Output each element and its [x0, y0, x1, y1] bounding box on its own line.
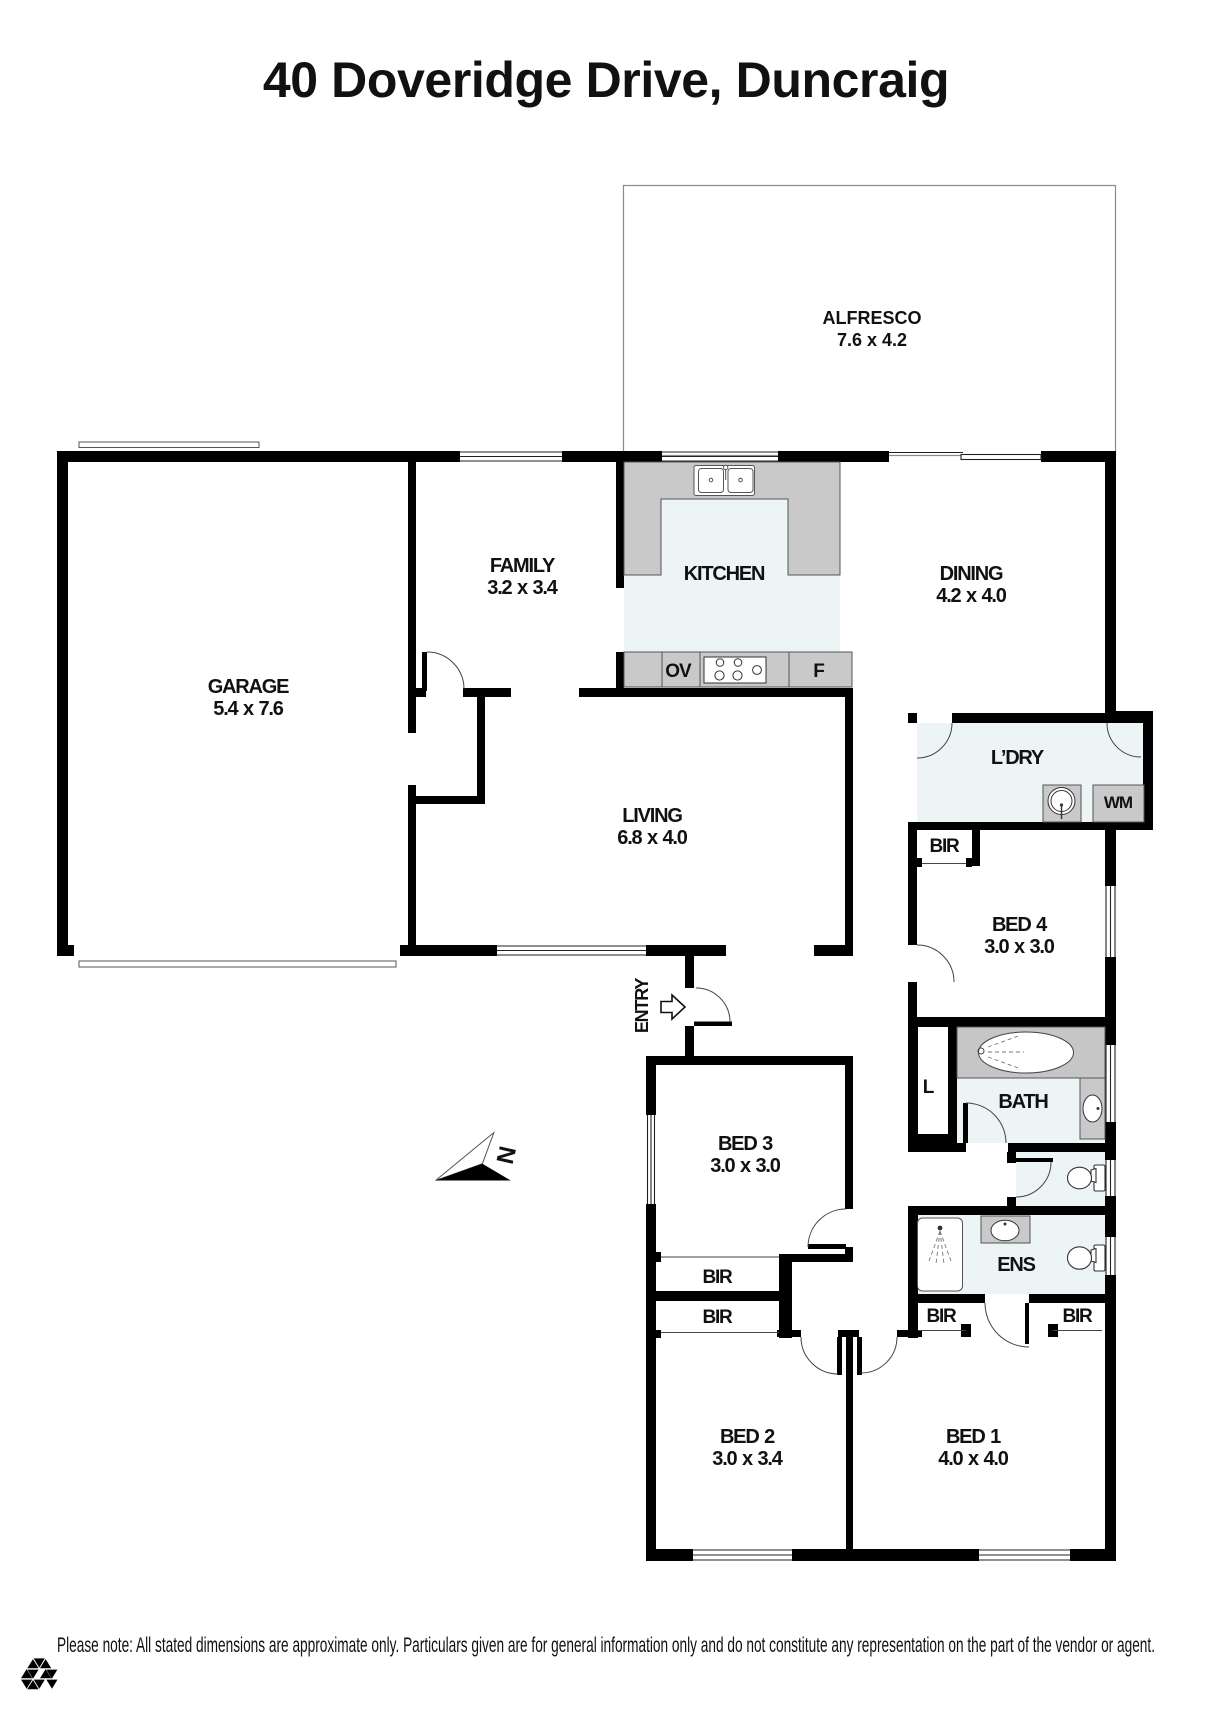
svg-text:3.2 x 3.4: 3.2 x 3.4 [487, 577, 559, 599]
svg-text:4.0 x 4.0: 4.0 x 4.0 [938, 1448, 1009, 1470]
svg-text:4.2 x 4.0: 4.2 x 4.0 [936, 585, 1007, 607]
svg-text:BED 3: BED 3 [718, 1133, 773, 1155]
svg-text:L: L [923, 1077, 935, 1098]
svg-text:DINING: DINING [940, 563, 1003, 585]
svg-text:FAMILY: FAMILY [490, 555, 556, 577]
svg-text:ALFRESCO: ALFRESCO [823, 308, 922, 328]
svg-text:BED 4: BED 4 [992, 914, 1048, 936]
svg-text:GARAGE: GARAGE [208, 676, 289, 698]
svg-text:L’DRY: L’DRY [991, 747, 1045, 769]
svg-text:40 Doveridge Drive, Duncraig: 40 Doveridge Drive, Duncraig [263, 52, 949, 108]
svg-text:BED 1: BED 1 [946, 1426, 1001, 1448]
svg-text:BIR: BIR [926, 1306, 957, 1327]
svg-text:7.6 x 4.2: 7.6 x 4.2 [837, 330, 907, 350]
svg-text:3.0 x 3.0: 3.0 x 3.0 [984, 936, 1055, 958]
svg-text:OV: OV [665, 661, 692, 682]
svg-text:BIR: BIR [702, 1267, 733, 1288]
svg-text:5.4 x 7.6: 5.4 x 7.6 [213, 698, 284, 720]
svg-text:BATH: BATH [998, 1091, 1048, 1113]
svg-text:6.8 x 4.0: 6.8 x 4.0 [617, 827, 688, 849]
svg-text:WM: WM [1104, 793, 1133, 812]
svg-text:Please note: All stated dimens: Please note: All stated dimensions are a… [57, 1634, 1155, 1657]
svg-text:BIR: BIR [1062, 1306, 1093, 1327]
svg-text:F: F [813, 661, 825, 682]
svg-text:BIR: BIR [702, 1307, 733, 1328]
svg-text:3.0 x 3.0: 3.0 x 3.0 [710, 1155, 781, 1177]
svg-text:ENS: ENS [997, 1254, 1035, 1276]
svg-text:KITCHEN: KITCHEN [684, 563, 765, 585]
svg-text:ENTRY: ENTRY [632, 978, 652, 1034]
svg-text:BIR: BIR [929, 836, 960, 857]
svg-text:3.0 x 3.4: 3.0 x 3.4 [712, 1448, 784, 1470]
svg-text:LIVING: LIVING [622, 805, 682, 827]
svg-text:BED 2: BED 2 [720, 1426, 775, 1448]
